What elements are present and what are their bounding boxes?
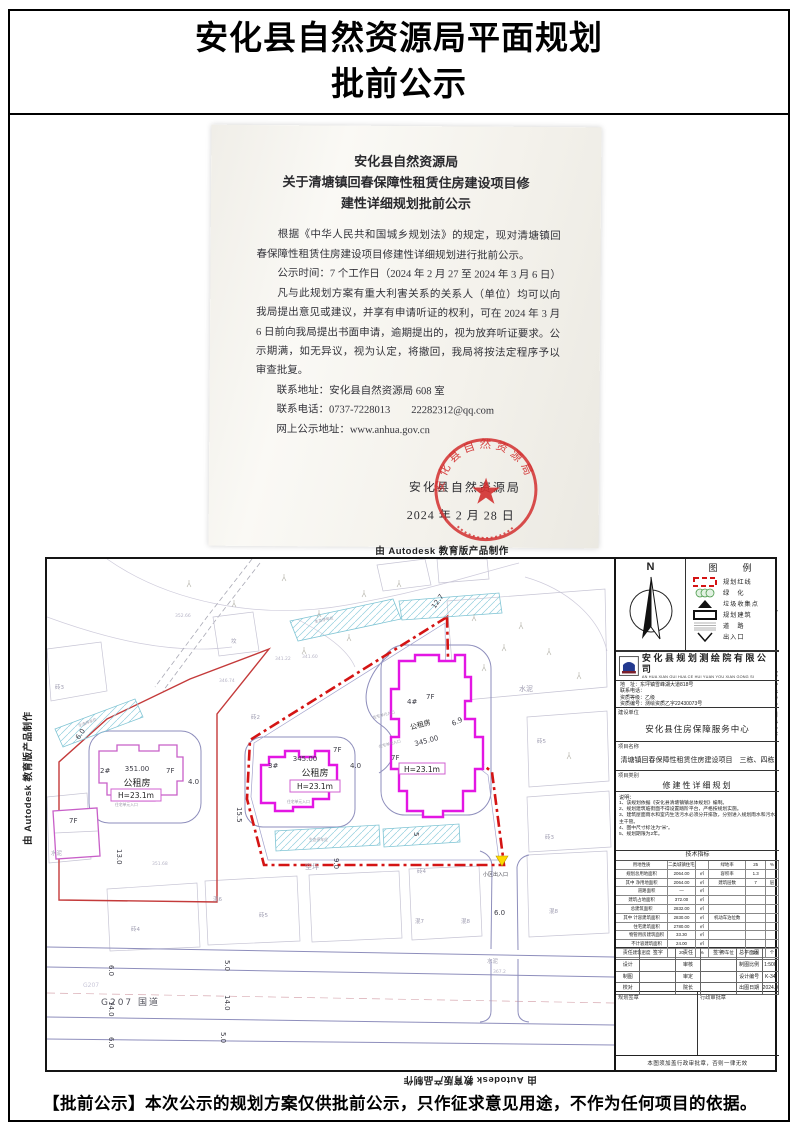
- page-title-line1: 安化县自然资源局平面规划: [195, 15, 603, 61]
- notice-title-line2: 关于清塘镇回春保障性租赁住房建设项目修: [211, 171, 601, 195]
- dim-13-0: 13.0: [115, 849, 123, 865]
- compass-icon: [623, 573, 679, 645]
- notice-contact-phone: 联系电话：0737-7228013 22282312@qq.com: [255, 400, 559, 422]
- notes-section: 说明： 1、该规划依据《安化县清塘镇镇总体规划》编制。2、规划建筑临街面不得设置…: [616, 792, 779, 851]
- category-section: 项目类别 修建性详细规划: [616, 771, 779, 792]
- legend-item: 道 路: [692, 620, 776, 631]
- table-cell: 总建筑面积: [616, 905, 668, 914]
- red-line-symbol-icon: [692, 577, 718, 587]
- table-cell: ㎡: [696, 905, 709, 914]
- table-cell: 设计: [616, 960, 640, 972]
- building2-height: H=23.1m: [118, 791, 154, 800]
- legend-item: 规划红线: [692, 576, 776, 587]
- table-cell: 总平面图: [737, 948, 763, 960]
- table-cell: [766, 923, 779, 932]
- tech-title: 技术指标: [616, 851, 779, 861]
- site-plan-canvas: 2# 351.00 7F 公租房 H=23.1m 3# 345.00 7F 公租…: [47, 559, 614, 1070]
- building4-height: H=23.1m: [404, 765, 440, 774]
- client-section: 建设单位 安化县住房保障服务中心: [616, 708, 779, 742]
- table-cell: [766, 914, 779, 923]
- building3-number: 3#: [268, 762, 278, 770]
- notice-paragraph: 凡与此规划方案有重大利害关系的关系人（单位）均可以向我局提出意见或建议，并享有申…: [256, 284, 561, 383]
- table-cell: ㎡: [696, 931, 709, 940]
- elevation-label: 352.66: [175, 613, 191, 619]
- client-value: 安化县住房保障服务中心: [616, 723, 779, 735]
- company-pinyin: AN HUA XIAN GUI HUA CE HUI YUAN YOU XIAN…: [642, 675, 779, 679]
- notice-title: 安化县自然资源局 关于清塘镇回春保障性租赁住房建设项目修 建性详细规划批前公示: [211, 151, 601, 216]
- table-cell: [701, 960, 737, 972]
- table-cell: 7: [746, 879, 766, 888]
- notes-title: 说明：: [619, 794, 777, 801]
- tech-indicator-section: 技术指标 用地性质二类城镇住宅用地绿地率25%规划总用地面积2064.00㎡容积…: [616, 851, 779, 948]
- announcement-poster: 安化县自然资源局平面规划 批前公示 安化县自然资源局 关于清塘镇回春保障性租赁住…: [0, 0, 800, 1131]
- table-cell: 1.3: [746, 870, 766, 879]
- elevation-label: 341.22: [275, 656, 291, 662]
- table-cell: 5、规划期限为2年。: [619, 832, 777, 838]
- building1-floors: 7F: [69, 817, 77, 825]
- table-cell: 2830.00: [668, 914, 696, 923]
- approval-stamp-cell: 行政审批章: [698, 992, 779, 1055]
- site-label: 水泥: [51, 849, 63, 857]
- table-cell: [746, 896, 766, 905]
- legend-section: N 图 例 规划红线: [616, 559, 779, 651]
- table-cell: 道路面积: [616, 887, 668, 896]
- company-info: 地 址：东坪镇雪峰湖大道818号联系电话：资质等级：乙级资质编号：测绘资质乙字2…: [616, 681, 779, 708]
- table-cell: 签字: [640, 948, 676, 960]
- page-title: 安化县自然资源局平面规划 批前公示: [8, 9, 790, 115]
- site-label: 砖3: [545, 833, 555, 841]
- table-cell: 25: [746, 861, 766, 870]
- legend-item: 规划建筑: [692, 609, 776, 620]
- table-cell: 机动车泊位数: [709, 914, 746, 923]
- client-label: 建设单位: [618, 709, 639, 716]
- planning-stamp-label: 规划签章: [618, 994, 639, 1001]
- table-cell: K-34: [763, 972, 779, 984]
- table-cell: [746, 887, 766, 896]
- notes-list: 1、该规划依据《安化县清塘镇镇总体规划》编制。2、规划建筑临街面不得设置踏阶平台…: [619, 801, 777, 838]
- table-cell: 用地性质: [616, 861, 668, 870]
- site-label: 砖5: [537, 737, 547, 745]
- building4-floors2: 7F: [391, 754, 399, 762]
- company-bar: 安化县规划测绘院有限公司 AN HUA XIAN GUI HUA CE HUI …: [616, 651, 779, 681]
- table-cell: [709, 887, 746, 896]
- dim-6-0: 6.0: [107, 1037, 115, 1048]
- page-title-line2: 批前公示: [331, 61, 467, 107]
- legend-item: 出入口: [692, 631, 776, 642]
- table-cell: 住宅建筑面积: [616, 923, 668, 932]
- table-cell: 二类城镇住宅用地: [668, 861, 696, 870]
- dim-15-5: 15.5: [235, 807, 243, 823]
- official-seal-icon: 安化县自然资源局 ★: [424, 431, 545, 548]
- table-cell: [746, 914, 766, 923]
- table-cell: 建筑层数: [709, 879, 746, 888]
- table-cell: 3、建筑屋面雨水和室内生活污水必须分开排放，分别进入规划雨水和污水主干管。: [619, 813, 777, 825]
- garbage-point-symbol-icon: [692, 599, 718, 609]
- table-cell: %: [766, 861, 779, 870]
- building2-area: 351.00: [125, 765, 150, 773]
- table-cell: [746, 923, 766, 932]
- elevation-label: 341.60: [302, 654, 318, 660]
- footer-disclaimer: 【批前公示】本次公示的规划方案仅供批前公示，只作征求意见用途，不作为任何项目的依…: [10, 1082, 790, 1122]
- entrance-triangle-icon: [496, 856, 508, 866]
- dim-5-0: 5.0: [219, 1032, 227, 1043]
- notice-title-line1: 安化县自然资源局: [211, 151, 601, 175]
- project-value: 清塘镇回春保障性租赁住房建设项目 三栋、四栋: [616, 755, 779, 765]
- table-cell: 2780.00: [668, 923, 696, 932]
- table-cell: 签字: [701, 948, 737, 960]
- company-name-block: 安化县规划测绘院有限公司 AN HUA XIAN GUI HUA CE HUI …: [642, 653, 779, 679]
- title-block-panel: N 图 例 规划红线: [614, 559, 779, 1070]
- table-cell: 2832.00: [668, 905, 696, 914]
- table-cell: 责任: [616, 948, 640, 960]
- table-cell: ㎡: [696, 896, 709, 905]
- table-cell: 绿地率: [709, 861, 746, 870]
- table-cell: [709, 931, 746, 940]
- table-cell: 其中 净用地面积: [616, 879, 668, 888]
- table-cell: [709, 905, 746, 914]
- building2-number: 2#: [100, 767, 110, 775]
- elevation-label: 367.2: [493, 969, 506, 975]
- table-cell: 物管用房建筑面积: [616, 931, 668, 940]
- table-cell: ㎡: [696, 879, 709, 888]
- table-cell: [766, 931, 779, 940]
- building3-area: 345.00: [293, 755, 318, 763]
- table-cell: 审核: [676, 960, 700, 972]
- table-cell: 规划总用地面积: [616, 870, 668, 879]
- site-label: 坟: [231, 637, 237, 645]
- g207-road-label: G207 国道: [101, 996, 160, 1008]
- table-cell: [709, 896, 746, 905]
- table-cell: [746, 931, 766, 940]
- autodesk-watermark-left: 由 Autodesk 教育版产品制作: [20, 711, 34, 845]
- building2-name: 公租房: [123, 777, 150, 789]
- legend-list: 图 例 规划红线 绿 化 垃圾收集点: [686, 559, 779, 650]
- table-cell: 33.30: [668, 931, 696, 940]
- panel-bottom-note-row: 本图须加盖行政审批章，否则一律无效: [616, 1055, 779, 1070]
- table-cell: ㎡: [696, 887, 709, 896]
- dim-5-0: 5.0: [223, 960, 231, 971]
- site-label: 砖3: [55, 683, 65, 691]
- road-symbol-icon: [692, 621, 718, 631]
- table-cell: 资质编号：测绘资质乙字22430073号: [620, 701, 779, 707]
- table-cell: ㎡: [696, 923, 709, 932]
- dim-4-0: 4.0: [350, 762, 361, 770]
- table-cell: 1:500: [763, 960, 779, 972]
- notice-body: 根据《中华人民共和国城乡规划法》的规定，现对清塘镇回春保障性租赁住房建设项目修建…: [255, 225, 560, 441]
- dim-5: 5: [412, 832, 420, 836]
- table-cell: 层: [766, 879, 779, 888]
- table-cell: [766, 870, 779, 879]
- site-label: 混7: [415, 917, 425, 925]
- table-cell: —: [668, 887, 696, 896]
- site-label: 混8: [461, 917, 471, 925]
- site-plan-drawing: 2# 351.00 7F 公租房 H=23.1m 3# 345.00 7F 公租…: [45, 557, 777, 1072]
- eco-parking-label: 生态停车位: [309, 837, 328, 842]
- table-cell: [701, 972, 737, 984]
- legend-label: 规划红线: [723, 577, 752, 586]
- table-cell: 2064.00: [668, 879, 696, 888]
- table-cell: [766, 887, 779, 896]
- building3-floors: 7F: [333, 746, 341, 754]
- notice-paragraph: 公示时间：7 个工作日（2024 年 2 月 27 至 2024 年 3 月 6…: [256, 264, 560, 286]
- unit-entrance-label: 住宅单元入口: [287, 799, 310, 804]
- site-label: 空坪: [305, 862, 319, 871]
- category-value: 修建性详细规划: [616, 780, 779, 791]
- stamp-section: 规划签章 行政审批章: [616, 992, 779, 1055]
- planned-building-symbol-icon: [692, 610, 718, 620]
- elevation-label: 346.74: [219, 678, 235, 684]
- table-cell: 372.00: [668, 896, 696, 905]
- greenery-symbol-icon: [692, 588, 718, 598]
- table-cell: 制图: [616, 972, 640, 984]
- notice-paragraph: 根据《中华人民共和国城乡规划法》的规定，现对清塘镇回春保障性租赁住房建设项目修建…: [257, 225, 561, 266]
- table-cell: [763, 948, 779, 960]
- table-cell: 制图比例: [737, 960, 763, 972]
- legend-label: 绿 化: [723, 588, 745, 597]
- north-arrow: N: [616, 559, 686, 650]
- dim-6-0-road: 6.0: [494, 909, 505, 917]
- table-cell: ㎡: [696, 914, 709, 923]
- building2-floors: 7F: [166, 767, 174, 775]
- building3-name: 公租房: [301, 767, 328, 779]
- entrance-symbol-icon: [692, 632, 718, 642]
- table-cell: 其中 计容建筑面积: [616, 914, 668, 923]
- building4-floors: 7F: [426, 693, 434, 701]
- legend-label: 出入口: [723, 632, 745, 641]
- signature-table: 责任签字责任签字总平面图设计审核制图比例1:500制图审定设计编号K-34校对院…: [616, 948, 779, 995]
- company-logo-icon: [619, 656, 639, 676]
- signature-section: 责任签字责任签字总平面图设计审核制图比例1:500制图审定设计编号K-34校对院…: [616, 948, 779, 992]
- table-cell: [709, 923, 746, 932]
- seal-star-icon: ★: [470, 471, 503, 512]
- legend-title: 图 例: [692, 561, 776, 574]
- legend-label: 道 路: [723, 621, 745, 630]
- site-label: 水泥: [519, 684, 533, 693]
- elevation-label: 351.68: [152, 861, 168, 867]
- site-label: 砖4: [417, 867, 427, 875]
- dim-9-0: 9.0: [332, 858, 340, 869]
- table-cell: 设计编号: [737, 972, 763, 984]
- table-cell: [696, 861, 709, 870]
- site-label: 砖2: [251, 713, 260, 721]
- dim-4-0: 4.0: [188, 778, 199, 786]
- table-cell: [766, 905, 779, 914]
- site-label: 砖4: [131, 925, 141, 933]
- table-cell: 审定: [676, 972, 700, 984]
- table-cell: 责任: [676, 948, 700, 960]
- legend-item: 绿 化: [692, 587, 776, 598]
- scanned-notice: 安化县自然资源局 关于清塘镇回春保障性租赁住房建设项目修 建性详细规划批前公示 …: [209, 125, 602, 549]
- approval-stamp-label: 行政审批章: [700, 994, 726, 1001]
- notice-title-line3: 建性详细规划批前公示: [211, 192, 601, 216]
- building4-number: 4#: [407, 698, 417, 706]
- table-cell: ㎡: [696, 870, 709, 879]
- site-label: 砖5: [259, 911, 269, 919]
- table-cell: [766, 896, 779, 905]
- table-cell: [640, 972, 676, 984]
- project-label: 项目名称: [618, 743, 639, 750]
- project-section: 项目名称 清塘镇回春保障性租赁住房建设项目 三栋、四栋: [616, 742, 779, 771]
- table-cell: 2064.00: [668, 870, 696, 879]
- panel-bottom-note: 本图须加盖行政审批章，否则一律无效: [647, 1059, 747, 1067]
- legend-label: 垃圾收集点: [723, 599, 759, 608]
- table-cell: 容积率: [709, 870, 746, 879]
- north-label: N: [647, 561, 655, 573]
- company-name: 安化县规划测绘院有限公司: [642, 653, 779, 675]
- dim-14-0: 14.0: [223, 995, 231, 1011]
- entrance-label: 小区出入口: [483, 871, 508, 878]
- site-label: 水泥: [487, 957, 499, 965]
- legend-label: 规划建筑: [723, 610, 752, 619]
- dim-6-0: 6.0: [107, 965, 115, 976]
- autodesk-watermark-top: 由 Autodesk 教育版产品制作: [312, 543, 572, 557]
- table-cell: [746, 905, 766, 914]
- legend-item: 垃圾收集点: [692, 598, 776, 609]
- site-label: 混6: [213, 895, 223, 903]
- building3-height: H=23.1m: [297, 782, 333, 791]
- category-label: 项目类别: [618, 772, 639, 779]
- table-cell: 建筑占地面积: [616, 896, 668, 905]
- g207-faint-label: G207: [83, 982, 99, 989]
- unit-entrance-label: 住宅单元入口: [115, 802, 138, 807]
- notice-contact-address: 联系地址：安化县自然资源局 608 室: [256, 381, 560, 403]
- table-cell: [640, 960, 676, 972]
- planning-stamp-cell: 规划签章: [616, 992, 698, 1055]
- tech-table: 用地性质二类城镇住宅用地绿地率25%规划总用地面积2064.00㎡容积率1.3其…: [616, 861, 779, 958]
- site-label: 混8: [549, 907, 559, 915]
